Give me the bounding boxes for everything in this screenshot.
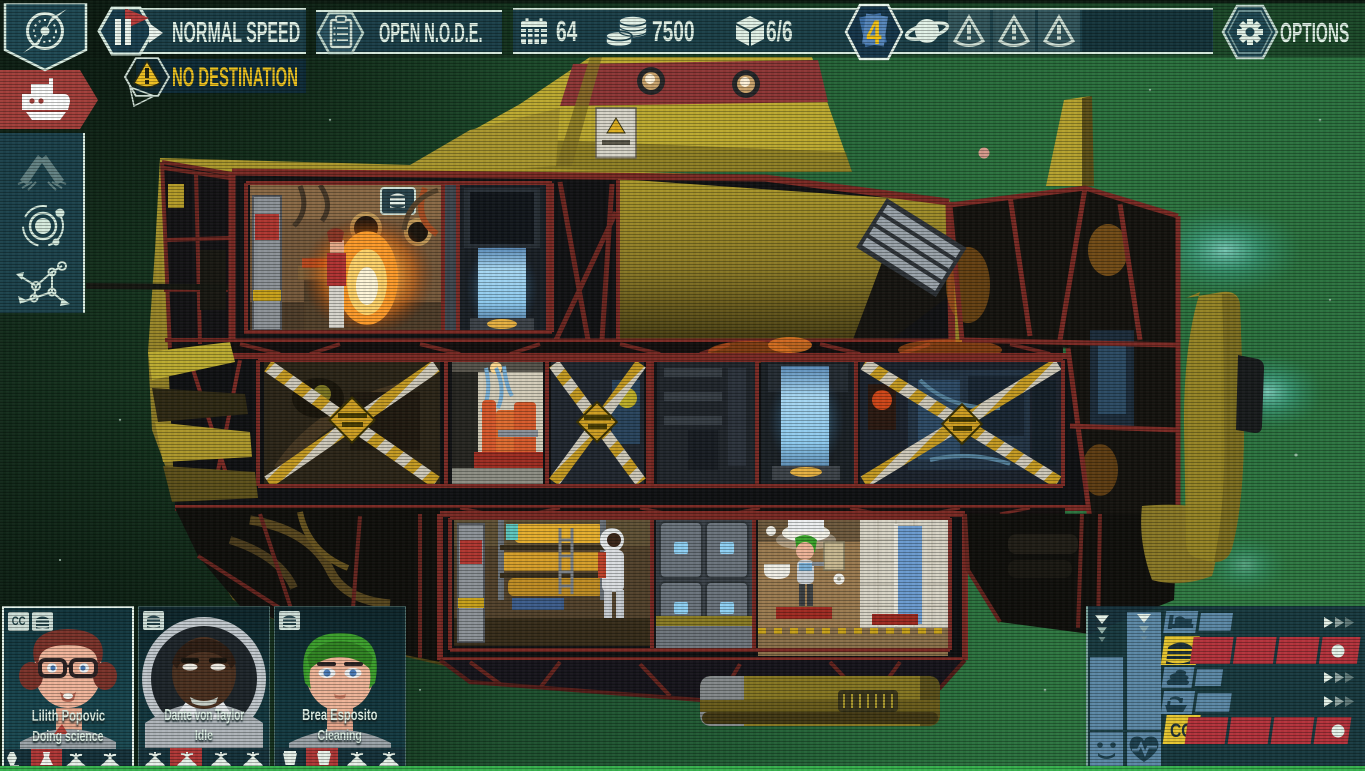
svg-text:4: 4 [866,13,881,52]
